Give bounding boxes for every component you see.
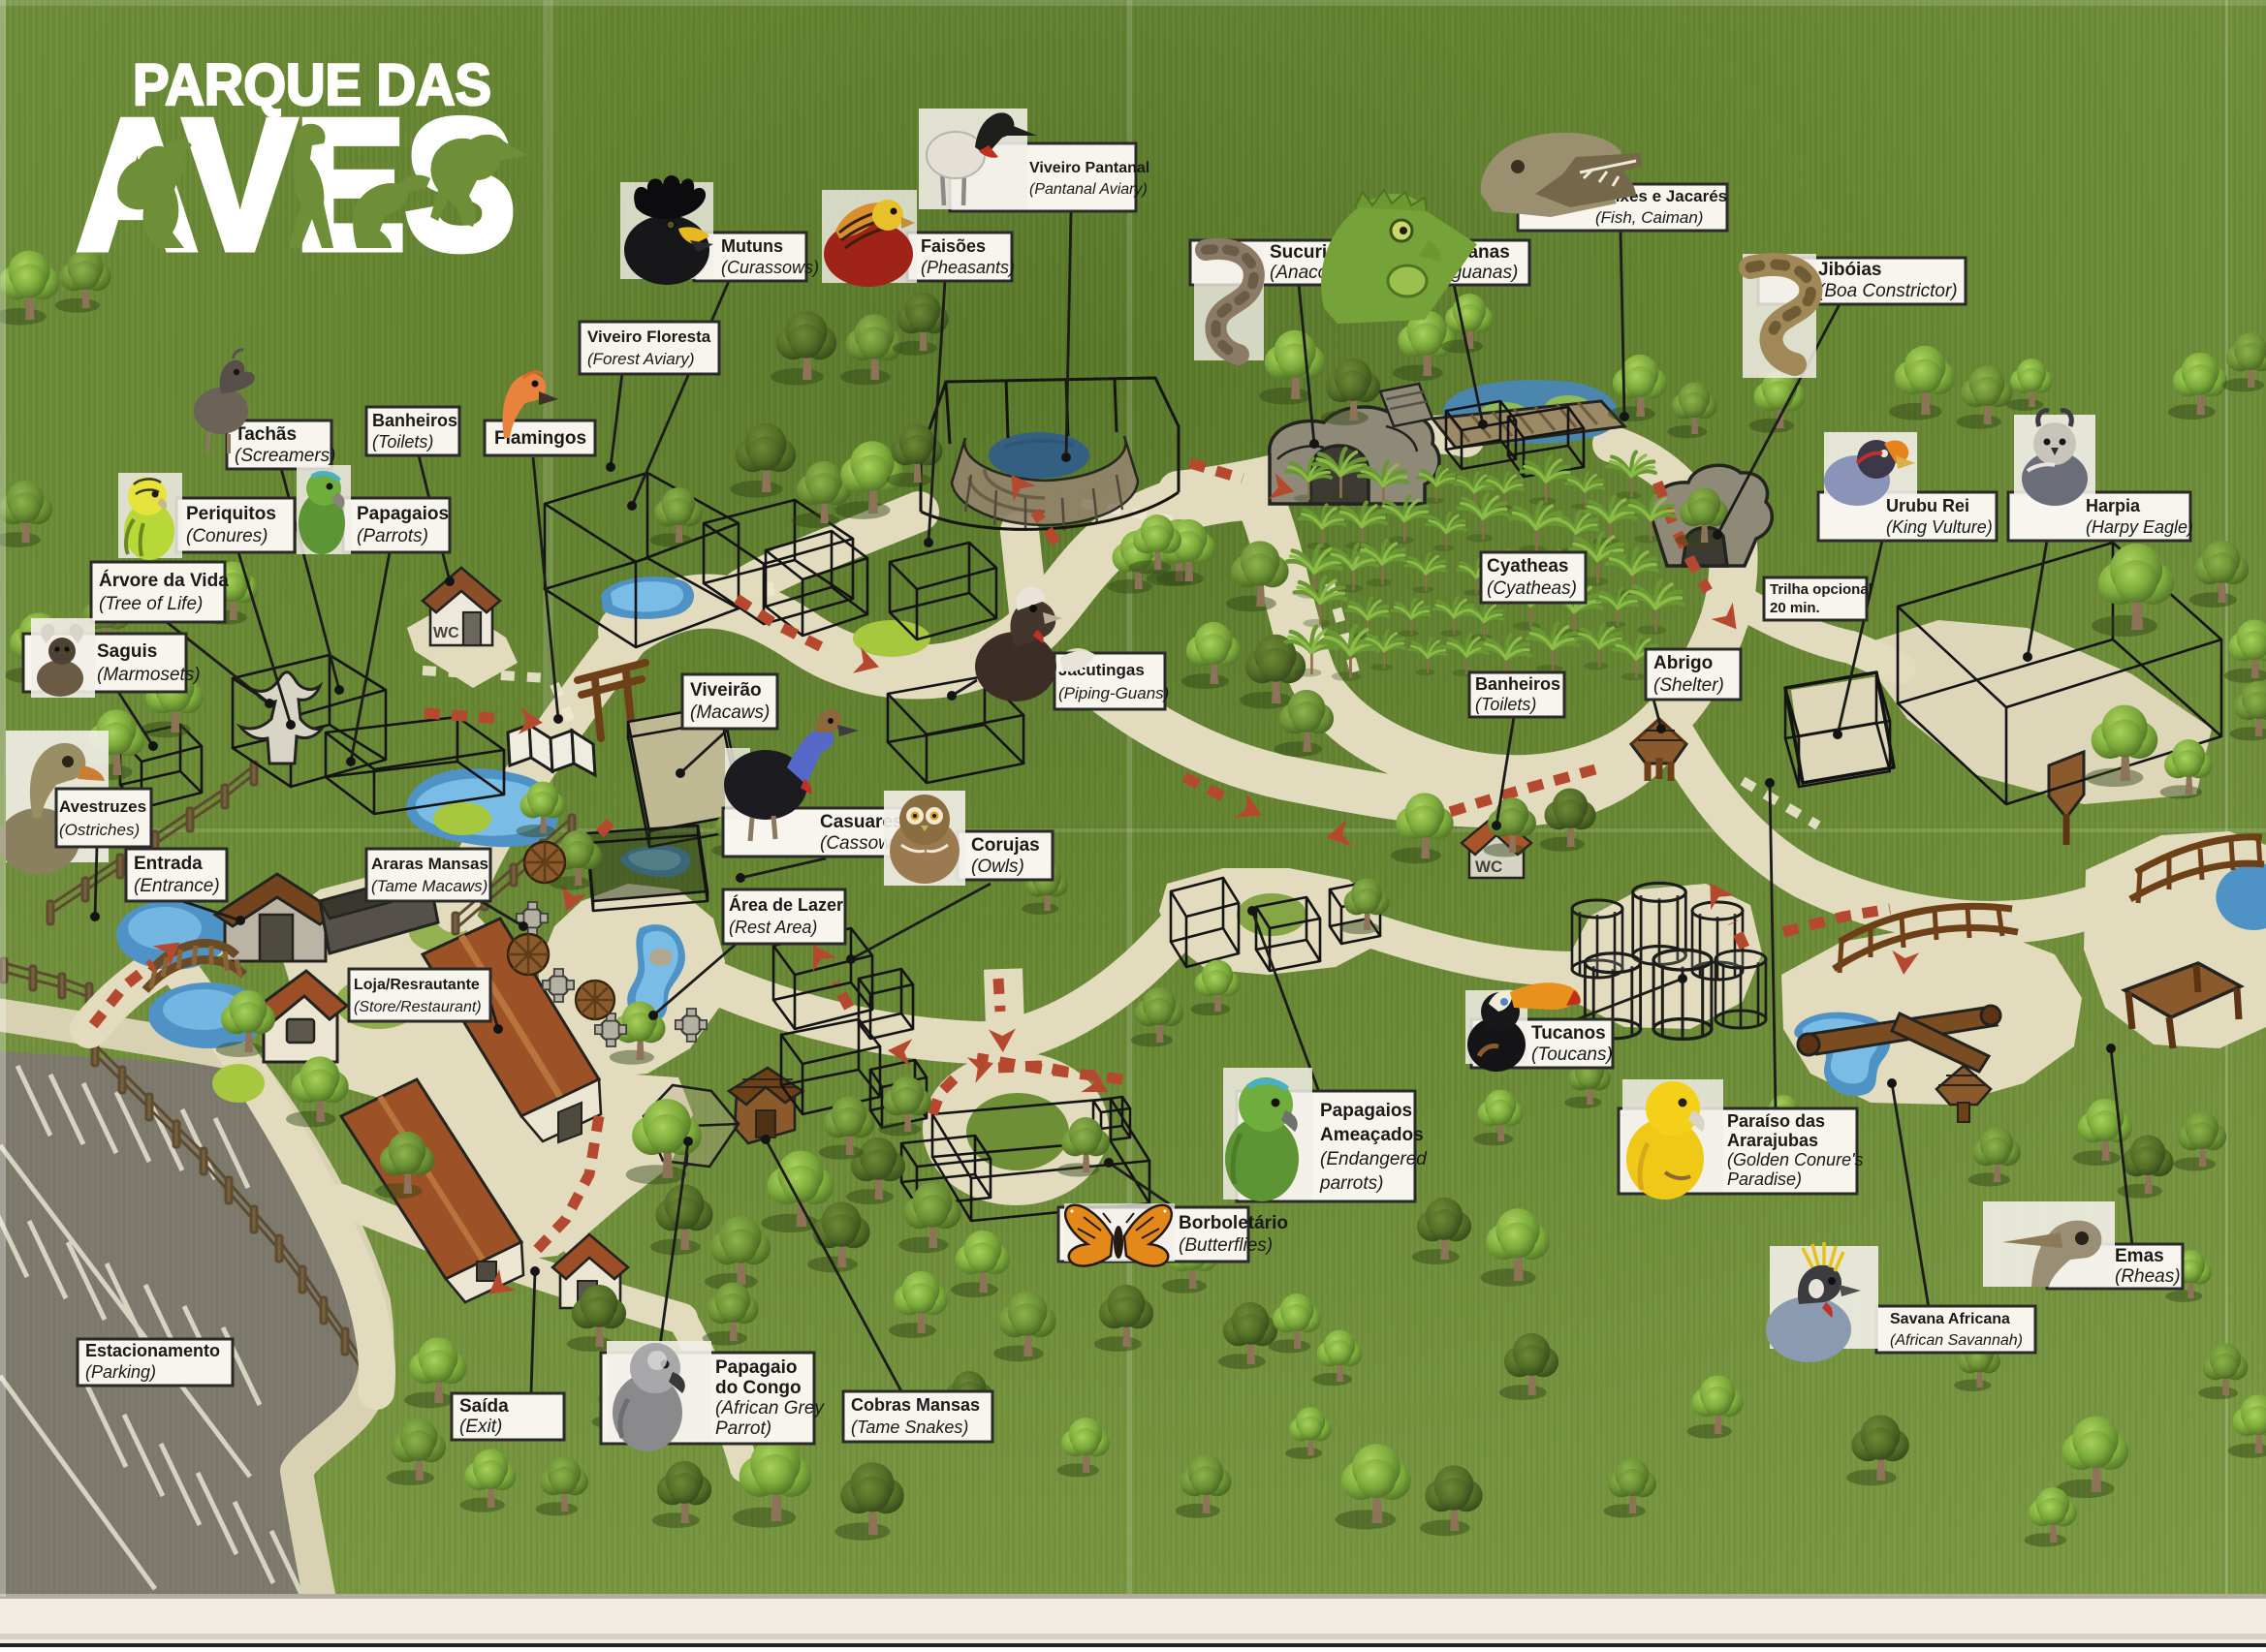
svg-text:WC: WC [1475, 857, 1502, 876]
svg-text:(Golden Conure's: (Golden Conure's [1727, 1150, 1864, 1169]
svg-text:Viveirão: Viveirão [690, 680, 762, 701]
svg-text:(Fish, Caiman): (Fish, Caiman) [1595, 208, 1703, 227]
svg-text:Faisões: Faisões [921, 236, 986, 256]
svg-text:(Harpy Eagle): (Harpy Eagle) [2086, 517, 2193, 537]
svg-text:(Macaws): (Macaws) [690, 702, 770, 723]
svg-text:(Rest Area): (Rest Area) [729, 918, 817, 937]
svg-text:(Shelter): (Shelter) [1653, 675, 1724, 696]
svg-text:Borboletário: Borboletário [1179, 1213, 1288, 1233]
svg-text:(Parking): (Parking) [85, 1362, 156, 1382]
svg-text:(Forest Aviary): (Forest Aviary) [587, 350, 695, 368]
svg-text:(Exit): (Exit) [459, 1417, 502, 1437]
svg-text:Loja/Resrautante: Loja/Resrautante [354, 977, 480, 993]
svg-text:Savana Africana: Savana Africana [1890, 1311, 2010, 1327]
svg-text:20 min.: 20 min. [1770, 600, 1820, 616]
svg-text:(Marmosets): (Marmosets) [97, 665, 201, 685]
svg-text:Tachãs: Tachãs [235, 424, 297, 445]
svg-text:Cobras Mansas: Cobras Mansas [851, 1395, 980, 1415]
svg-text:Viveiro Pantanal: Viveiro Pantanal [1029, 160, 1149, 176]
svg-text:Estacionamento: Estacionamento [85, 1341, 220, 1360]
svg-text:parrots): parrots) [1319, 1173, 1383, 1194]
svg-text:(Pantanal Aviary): (Pantanal Aviary) [1029, 181, 1148, 198]
svg-text:(Rheas): (Rheas) [2115, 1266, 2181, 1287]
svg-text:(Entrance): (Entrance) [134, 876, 220, 896]
svg-text:(African Savannah): (African Savannah) [1890, 1332, 2023, 1349]
svg-text:Papagaios: Papagaios [1320, 1101, 1412, 1121]
svg-text:Jibóias: Jibóias [1818, 260, 1881, 280]
svg-text:Paradise): Paradise) [1727, 1169, 1802, 1189]
svg-text:Parrot): Parrot) [715, 1418, 771, 1439]
svg-text:(Conures): (Conures) [186, 526, 268, 546]
svg-text:Viveiro Floresta: Viveiro Floresta [587, 327, 711, 346]
svg-text:(Cyatheas): (Cyatheas) [1487, 578, 1577, 599]
svg-text:(Toilets): (Toilets) [1475, 695, 1536, 714]
svg-text:(Endangered: (Endangered [1320, 1149, 1428, 1169]
svg-text:Harpia: Harpia [2086, 496, 2141, 515]
svg-text:Papagaio: Papagaio [715, 1357, 797, 1378]
svg-text:(Curassows): (Curassows) [721, 258, 819, 277]
svg-text:Mutuns: Mutuns [721, 236, 783, 256]
svg-text:Avestruzes: Avestruzes [59, 797, 146, 816]
svg-text:Periquitos: Periquitos [186, 504, 276, 524]
svg-text:Entrada: Entrada [134, 854, 203, 874]
svg-text:Emas: Emas [2115, 1246, 2164, 1266]
svg-text:(Piping-Guans): (Piping-Guans) [1058, 684, 1169, 702]
svg-text:Sucuri: Sucuri [1270, 242, 1327, 263]
svg-text:Trilha opcional: Trilha opcional [1770, 581, 1873, 598]
svg-text:(Toilets): (Toilets) [372, 432, 433, 452]
svg-text:Urubu Rei: Urubu Rei [1886, 496, 1969, 515]
svg-text:(Toucans): (Toucans) [1531, 1044, 1613, 1065]
svg-text:Paraíso das: Paraíso das [1727, 1111, 1825, 1131]
svg-text:Ameaçados: Ameaçados [1320, 1125, 1424, 1145]
svg-text:Área de Lazer: Área de Lazer [729, 894, 843, 915]
svg-text:(Butterflies): (Butterflies) [1179, 1235, 1273, 1256]
svg-text:Papagaios: Papagaios [357, 504, 449, 524]
svg-text:(Boa Constrictor): (Boa Constrictor) [1818, 281, 1958, 301]
svg-text:Saída: Saída [459, 1396, 509, 1417]
svg-text:Tucanos: Tucanos [1531, 1023, 1606, 1044]
svg-text:(Ostriches): (Ostriches) [59, 821, 140, 839]
svg-text:Corujas: Corujas [971, 835, 1040, 856]
svg-text:Cyatheas: Cyatheas [1487, 556, 1569, 577]
svg-text:WC: WC [433, 625, 459, 641]
svg-text:Banheiros: Banheiros [372, 411, 457, 430]
svg-text:(Owls): (Owls) [971, 857, 1024, 877]
svg-text:(Tame Macaws): (Tame Macaws) [371, 877, 488, 895]
svg-text:(African Grey: (African Grey [715, 1398, 825, 1418]
svg-text:(Pheasants): (Pheasants) [921, 258, 1015, 277]
svg-text:(King Vulture): (King Vulture) [1886, 517, 1993, 537]
svg-text:(Screamers): (Screamers) [235, 446, 336, 466]
svg-text:Saguis: Saguis [97, 641, 157, 662]
svg-text:Araras Mansas: Araras Mansas [371, 855, 488, 873]
svg-text:(Store/Restaurant): (Store/Restaurant) [354, 999, 482, 1015]
svg-text:Árvore da Vida: Árvore da Vida [99, 570, 229, 591]
svg-text:(Tree of Life): (Tree of Life) [99, 594, 203, 614]
svg-text:Abrigo: Abrigo [1653, 653, 1713, 673]
svg-text:Banheiros: Banheiros [1475, 674, 1560, 694]
svg-text:(Tame Snakes): (Tame Snakes) [851, 1418, 968, 1437]
svg-text:Ararajubas: Ararajubas [1727, 1131, 1818, 1150]
svg-text:do Congo: do Congo [715, 1378, 802, 1398]
svg-text:(Parrots): (Parrots) [357, 526, 428, 546]
